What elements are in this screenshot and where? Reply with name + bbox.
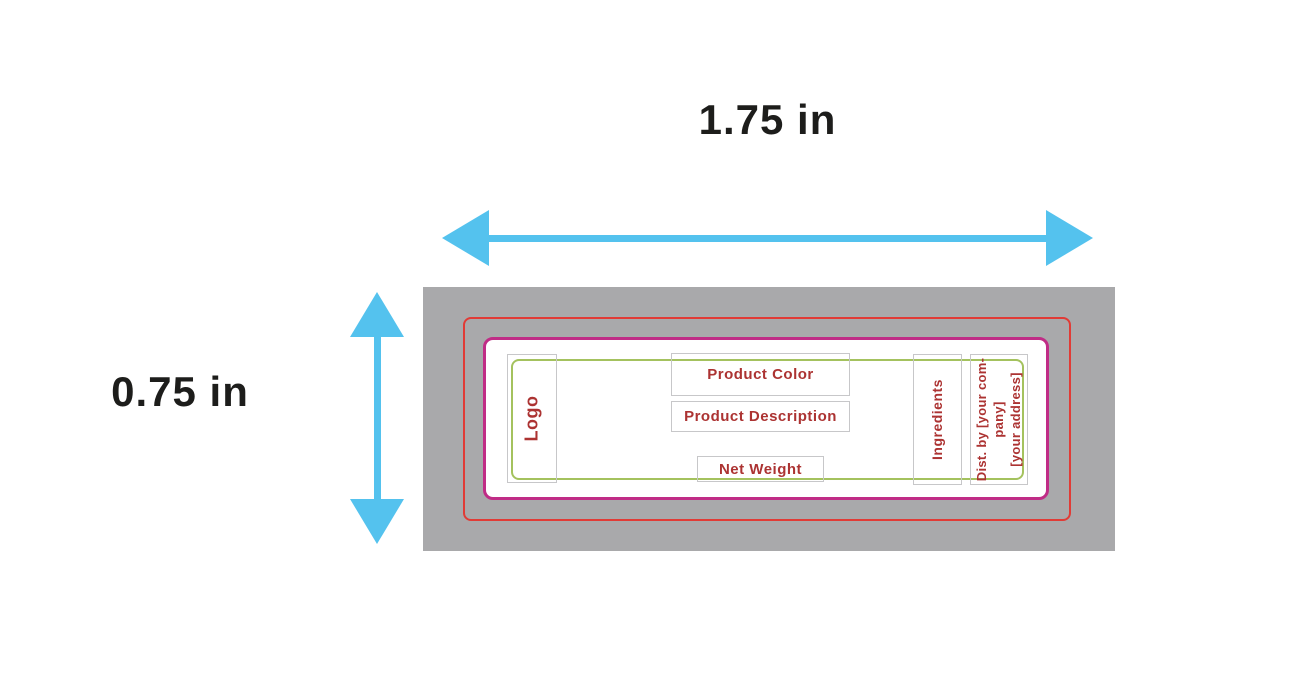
ingredients-placeholder: Ingredients [913, 354, 962, 485]
ingredients-label: Ingredients [929, 379, 946, 460]
product-color-placeholder: Product Color [671, 353, 850, 396]
distributor-line-1: Dist. by [your com- [974, 358, 991, 481]
height-dimension-arrow [350, 292, 404, 544]
width-dimension-arrow [442, 210, 1093, 266]
logo-placeholder-label: Logo [523, 396, 540, 442]
vertical-arrow-shaft [374, 332, 381, 504]
arrowhead-left-icon [442, 210, 489, 266]
product-description-placeholder: Product Description [671, 401, 850, 432]
distributor-placeholder: Dist. by [your com- pany] [your address] [970, 354, 1028, 485]
distributor-line-2: pany] [991, 358, 1008, 481]
net-weight-label: Net Weight [719, 461, 802, 478]
arrowhead-right-icon [1046, 210, 1093, 266]
distributor-line-3: [your address] [1008, 358, 1025, 481]
height-dimension-label: 0.75 in [100, 368, 260, 416]
product-color-label: Product Color [707, 366, 814, 383]
net-weight-placeholder: Net Weight [697, 456, 824, 482]
arrowhead-down-icon [350, 499, 404, 544]
logo-placeholder: Logo [507, 354, 557, 483]
horizontal-arrow-shaft [484, 235, 1051, 242]
bleed-area: Logo Product Color Product Description N… [423, 287, 1115, 551]
distributor-label: Dist. by [your com- pany] [your address] [974, 358, 1025, 481]
product-description-label: Product Description [684, 408, 837, 425]
width-dimension-label: 1.75 in [442, 96, 1093, 144]
arrowhead-up-icon [350, 292, 404, 337]
label-size-spec-diagram: 1.75 in 0.75 in Logo Product Color Produ… [0, 0, 1312, 700]
